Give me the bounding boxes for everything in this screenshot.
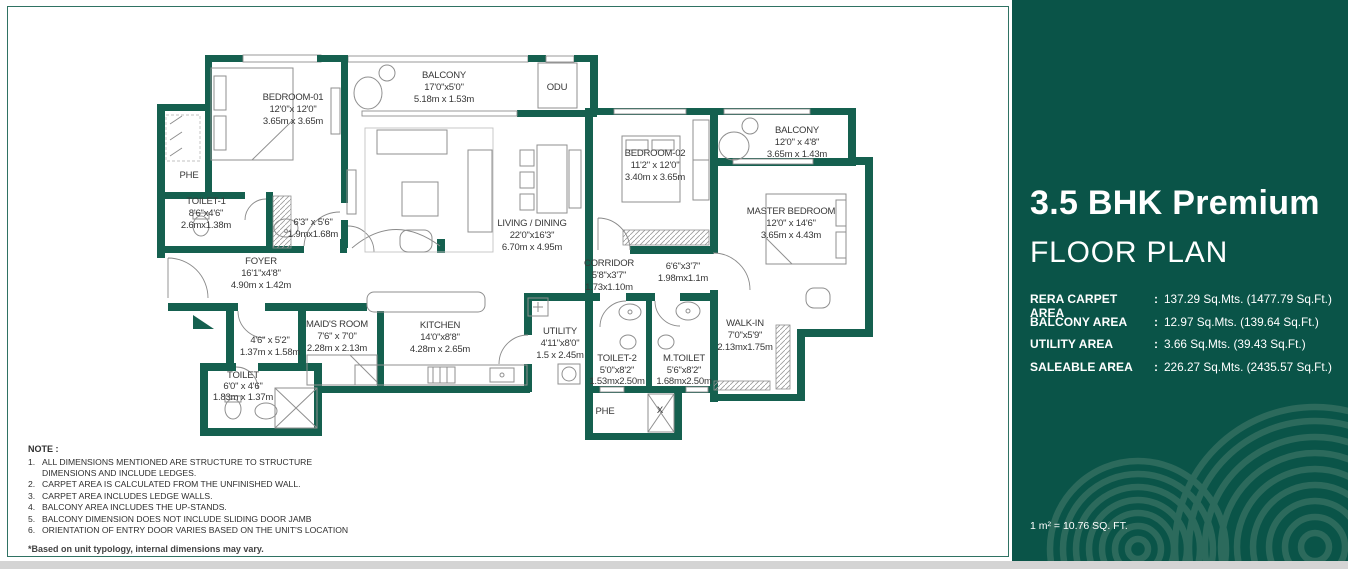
svg-text:12'0"x 12'0": 12'0"x 12'0"	[269, 104, 316, 115]
svg-text:22'0"x16'3": 22'0"x16'3"	[510, 230, 555, 241]
shower-x-icon	[275, 388, 317, 428]
room-label-phe-bottom: PHE	[596, 406, 615, 417]
svg-text:KITCHEN: KITCHEN	[420, 320, 461, 331]
svg-text:3.65m x 3.65m: 3.65m x 3.65m	[263, 116, 324, 127]
svg-text:PHE: PHE	[180, 170, 199, 181]
svg-text:BALCONY: BALCONY	[775, 125, 820, 136]
svg-text:14'0"x8'8": 14'0"x8'8"	[420, 332, 460, 343]
svg-text:1.98mx1.1m: 1.98mx1.1m	[658, 273, 709, 284]
svg-text:TOILET-1: TOILET-1	[186, 196, 225, 207]
room-label-master-bedroom: MASTER BEDROOM 12'0" x 14'6" 3.65m x 4.4…	[747, 206, 836, 241]
svg-text:4.90m x 1.42m: 4.90m x 1.42m	[231, 280, 292, 291]
room-label-kitchen: KITCHEN 14'0"x8'8" 4.28m x 2.65m	[410, 320, 471, 355]
room-label-toilet-1: TOILET-1 8'6"x4'6" 2.6mx1.38m	[181, 196, 232, 231]
dining-table-icon	[537, 145, 567, 213]
wardrobe-icon	[693, 120, 709, 160]
room-label-passage-1: 6'3" x 5'6" 1.9mx1.68m	[288, 217, 339, 240]
svg-text:6.70m x 4.95m: 6.70m x 4.95m	[502, 242, 563, 253]
room-label-maids-room: MAID'S ROOM 7'6" x 7'0" 2.28m x 2.13m	[306, 319, 368, 354]
note-item: 5. BALCONY DIMENSION DOES NOT INCLUDE SL…	[28, 514, 358, 525]
room-label-balcony-right: BALCONY 12'0" x 4'8" 3.65m x 1.43m	[767, 125, 828, 160]
svg-text:1.9mx1.68m: 1.9mx1.68m	[288, 229, 339, 240]
room-label-odu: ODU	[547, 82, 568, 93]
note-item: 1. ALL DIMENSIONS MENTIONED ARE STRUCTUR…	[28, 457, 358, 478]
svg-text:1.53mx2.50m: 1.53mx2.50m	[589, 376, 645, 387]
coffee-table-icon	[402, 182, 438, 216]
room-label-foyer: FOYER 16'1"x4'8" 4.90m x 1.42m	[231, 256, 292, 291]
svg-text:16'1"x4'8": 16'1"x4'8"	[241, 268, 281, 279]
svg-text:12'0" x 4'8": 12'0" x 4'8"	[775, 137, 819, 148]
svg-text:UTILITY: UTILITY	[543, 326, 578, 337]
svg-text:17'0"x5'0": 17'0"x5'0"	[424, 82, 464, 93]
room-label-phe-left: PHE	[180, 170, 199, 181]
svg-text:2.28m x 2.13m: 2.28m x 2.13m	[307, 343, 368, 354]
room-label-balcony-top: BALCONY 17'0"x5'0" 5.18m x 1.53m	[414, 70, 475, 105]
svg-text:MAID'S ROOM: MAID'S ROOM	[306, 319, 368, 330]
sofa-icon	[377, 130, 447, 154]
room-label-passage-2: 6'6"x3'7" 1.98mx1.1m	[658, 261, 709, 284]
room-label-bedroom-02: BEDROOM-02 11'2" x 12'0" 3.40m x 3.65m	[625, 148, 686, 183]
balcony-chair-icon	[354, 77, 382, 109]
svg-text:12'0" x 14'6": 12'0" x 14'6"	[766, 218, 816, 229]
svg-text:5'0"x8'2": 5'0"x8'2"	[600, 365, 634, 376]
plan-subtitle: FLOOR PLAN	[1030, 236, 1228, 270]
room-label-corridor: CORRIDOR 5'8"x3'7" 1.73x1.10m	[584, 258, 634, 293]
svg-text:6'6"x3'7": 6'6"x3'7"	[666, 261, 700, 272]
room-label-living-dining: LIVING / DINING 22'0"x16'3" 6.70m x 4.95…	[497, 218, 566, 253]
svg-text:5'6"x8'2": 5'6"x8'2"	[667, 365, 701, 376]
svg-text:1.83m x 1.37m: 1.83m x 1.37m	[213, 392, 274, 403]
room-label-bedroom-01: BEDROOM-01 12'0"x 12'0" 3.65m x 3.65m	[263, 92, 324, 127]
svg-text:ODU: ODU	[547, 82, 568, 93]
svg-text:M.TOILET: M.TOILET	[663, 353, 705, 364]
svg-text:1.73x1.10m: 1.73x1.10m	[585, 282, 633, 293]
tv-unit-icon	[347, 170, 356, 214]
kitchen-sink-icon	[490, 368, 514, 382]
note-item: 2. CARPET AREA IS CALCULATED FROM THE UN…	[28, 479, 358, 490]
floor-plan-sheet: BEDROOM-01 12'0"x 12'0" 3.65m x 3.65m BA…	[0, 0, 1012, 561]
svg-text:LIVING / DINING: LIVING / DINING	[497, 218, 566, 229]
svg-text:4.28m x 2.65m: 4.28m x 2.65m	[410, 344, 471, 355]
area-row-rera-carpet: RERA CARPET AREA:137.29 Sq.Mts. (1477.79…	[1030, 292, 1342, 315]
svg-text:FOYER: FOYER	[245, 256, 277, 267]
svg-text:3.65m x 1.43m: 3.65m x 1.43m	[767, 149, 828, 160]
svg-text:TOILET: TOILET	[227, 370, 259, 381]
notes-footnote: *Based on unit typology, internal dimens…	[28, 544, 358, 554]
svg-text:8'6"x4'6": 8'6"x4'6"	[189, 208, 223, 219]
rug-icon	[365, 128, 493, 252]
svg-text:WALK-IN: WALK-IN	[726, 318, 764, 329]
svg-text:2.13mx1.75m: 2.13mx1.75m	[717, 342, 773, 353]
entry-door-arc-icon	[168, 258, 208, 298]
ripple-pattern-icon	[1012, 0, 1348, 561]
dresser-icon	[331, 88, 340, 134]
svg-text:6'0" x 4'6": 6'0" x 4'6"	[223, 381, 262, 392]
entry-arrow-icon	[193, 315, 214, 329]
info-panel: 3.5 BHK Premium FLOOR PLAN RERA CARPET A…	[1012, 0, 1348, 561]
svg-text:3.40m x 3.65m: 3.40m x 3.65m	[625, 172, 686, 183]
svg-text:11'2" x 12'0": 11'2" x 12'0"	[631, 160, 680, 171]
svg-text:PHE: PHE	[596, 406, 615, 417]
note-item: 3. CARPET AREA INCLUDES LEDGE WALLS.	[28, 491, 358, 502]
svg-text:BEDROOM-01: BEDROOM-01	[263, 92, 324, 103]
svg-text:BEDROOM-02: BEDROOM-02	[625, 148, 686, 159]
svg-text:1.68mx2.50m: 1.68mx2.50m	[656, 376, 712, 387]
area-table: RERA CARPET AREA:137.29 Sq.Mts. (1477.79…	[1030, 292, 1342, 382]
svg-text:TOILET-2: TOILET-2	[597, 353, 636, 364]
notes-block: NOTE : 1. ALL DIMENSIONS MENTIONED ARE S…	[28, 444, 358, 554]
note-item: 6. ORIENTATION OF ENTRY DOOR VARIES BASE…	[28, 525, 358, 536]
svg-text:4'6" x 5'2": 4'6" x 5'2"	[250, 335, 289, 346]
sofa-side-icon	[468, 150, 492, 232]
balcony-table-icon	[379, 65, 395, 81]
note-item: 4. BALCONY AREA INCLUDES THE UP-STANDS.	[28, 502, 358, 513]
bottom-strip	[0, 561, 1348, 569]
area-row-utility: UTILITY AREA:3.66 Sq.Mts. (39.43 Sq.Ft.)	[1030, 337, 1342, 360]
phe-duct-marks-icon	[170, 116, 182, 156]
master-bed-icon	[766, 194, 846, 264]
svg-text:2.6mx1.38m: 2.6mx1.38m	[181, 220, 232, 231]
area-row-saleable: SALEABLE AREA:226.27 Sq.Mts. (2435.57 Sq…	[1030, 360, 1342, 383]
svg-text:BALCONY: BALCONY	[422, 70, 467, 81]
room-label-passage-3: 4'6" x 5'2" 1.37m x 1.58m	[240, 335, 301, 358]
room-label-utility: UTILITY 4'11"x8'0" 1.5 x 2.45m	[536, 326, 584, 361]
room-label-toilet: TOILET 6'0" x 4'6" 1.83m x 1.37m	[213, 370, 274, 403]
notes-heading: NOTE :	[28, 444, 358, 454]
dining-bench-icon	[569, 150, 581, 208]
svg-text:CORRIDOR: CORRIDOR	[584, 258, 634, 269]
svg-text:MASTER BEDROOM: MASTER BEDROOM	[747, 206, 836, 217]
svg-text:5'8"x3'7": 5'8"x3'7"	[592, 270, 626, 281]
hob-icon	[428, 367, 455, 383]
room-label-toilet-2: TOILET-2 5'0"x8'2" 1.53mx2.50m	[589, 353, 645, 387]
svg-text:6'3" x 5'6": 6'3" x 5'6"	[293, 217, 332, 228]
svg-text:4'11"x8'0": 4'11"x8'0"	[541, 338, 580, 349]
svg-text:7'6" x 7'0": 7'6" x 7'0"	[317, 331, 356, 342]
svg-text:7'0"x5'9": 7'0"x5'9"	[728, 330, 762, 341]
svg-text:X: X	[657, 405, 664, 416]
area-row-balcony: BALCONY AREA:12.97 Sq.Mts. (139.64 Sq.Ft…	[1030, 315, 1342, 338]
svg-text:3.65m x 4.43m: 3.65m x 4.43m	[761, 230, 822, 241]
room-label-shaft-x: X	[657, 405, 664, 416]
room-label-walk-in: WALK-IN 7'0"x5'9" 2.13mx1.75m	[717, 318, 773, 353]
room-label-m-toilet: M.TOILET 5'6"x8'2" 1.68mx2.50m	[656, 353, 712, 387]
svg-text:1.37m x 1.58m: 1.37m x 1.58m	[240, 347, 301, 358]
master-chair-icon	[806, 288, 830, 308]
conversion-note: 1 m² = 10.76 SQ. FT.	[1030, 520, 1128, 532]
svg-text:1.5 x 2.45m: 1.5 x 2.45m	[536, 350, 584, 361]
kitchen-island-icon	[367, 292, 485, 312]
plan-title: 3.5 BHK Premium	[1030, 184, 1320, 223]
svg-text:5.18m x 1.53m: 5.18m x 1.53m	[414, 94, 475, 105]
